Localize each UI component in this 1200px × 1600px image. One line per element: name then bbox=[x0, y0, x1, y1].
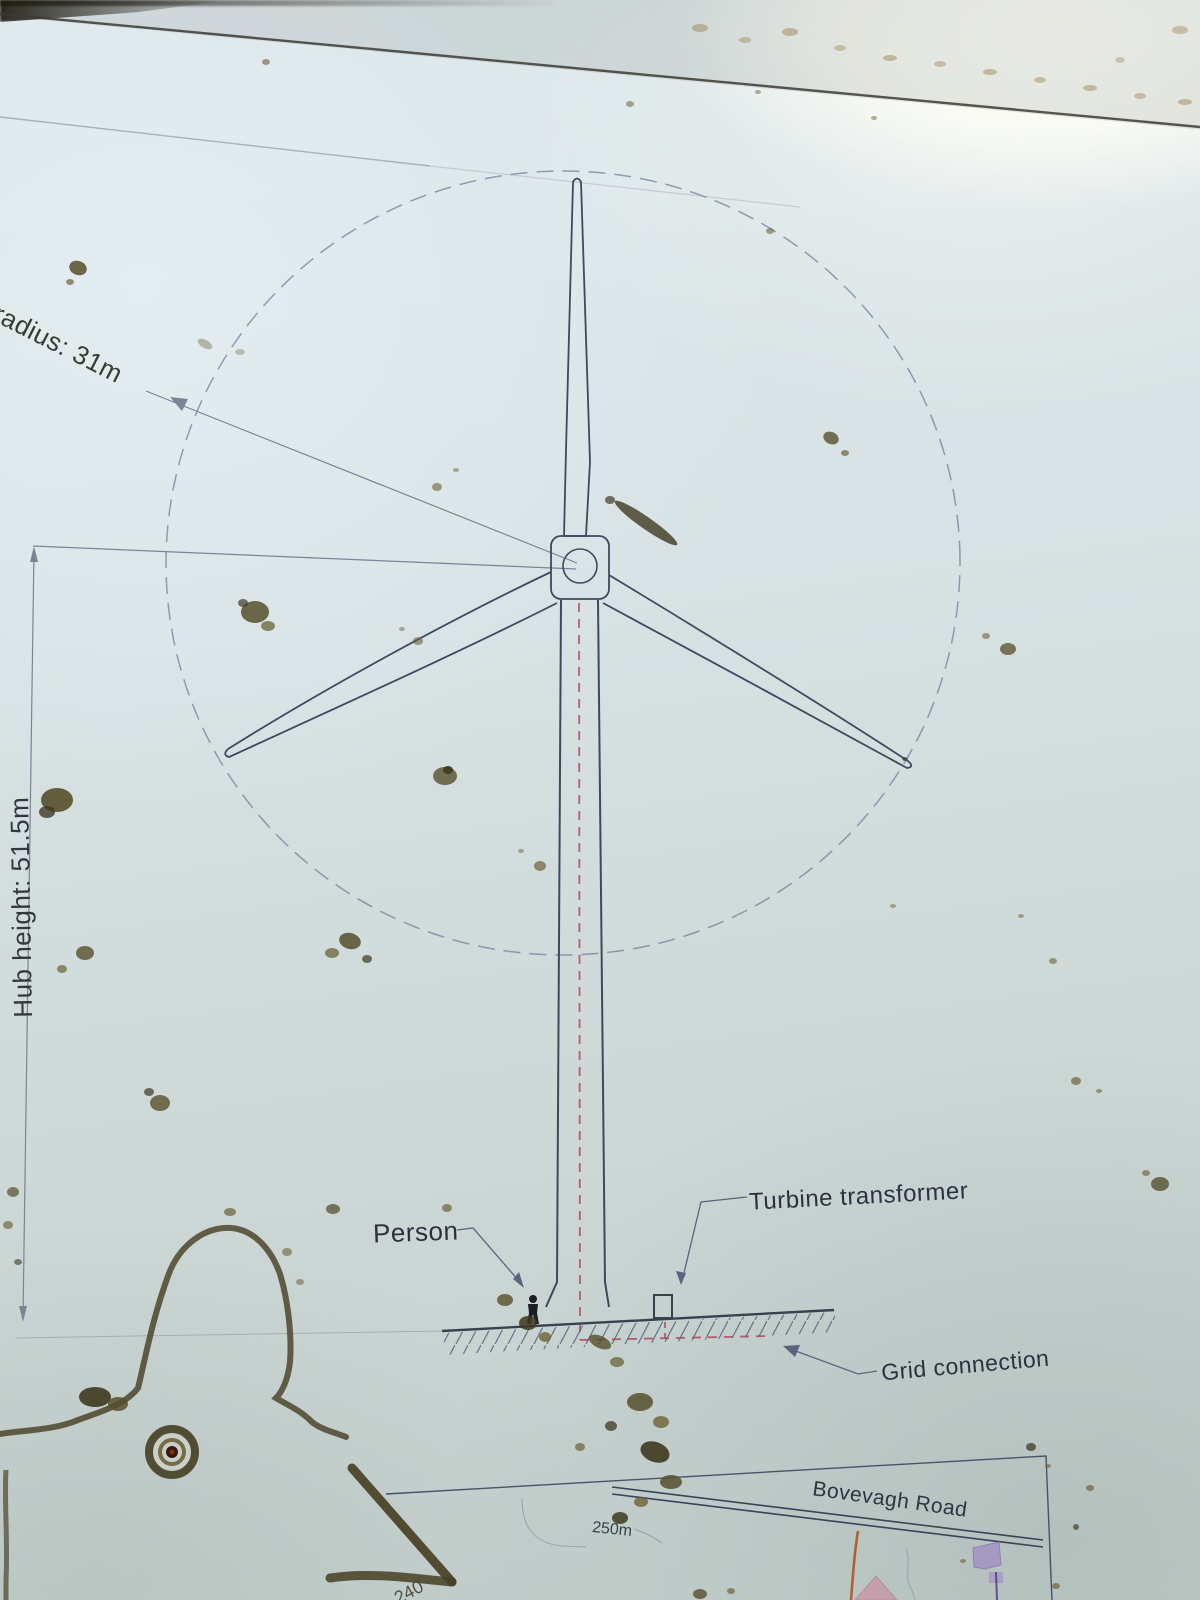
dirt-speck bbox=[296, 1279, 304, 1285]
grommet-core bbox=[170, 1450, 175, 1455]
dirt-speck bbox=[1045, 1464, 1051, 1468]
dirt-speck bbox=[1026, 1443, 1036, 1451]
dirt-speck bbox=[224, 1208, 236, 1216]
dirt-speck bbox=[693, 1589, 707, 1599]
dirt-speck bbox=[144, 1088, 154, 1096]
dirt-speck bbox=[1134, 93, 1146, 99]
dirt-speck bbox=[653, 1416, 669, 1428]
panel-border-line bbox=[0, 117, 430, 166]
dirt-speck bbox=[519, 1316, 537, 1330]
person-arrow-icon bbox=[513, 1272, 524, 1288]
dirt-speck bbox=[235, 349, 245, 355]
dirt-speck bbox=[755, 90, 761, 94]
dirt-streak-horizontal bbox=[330, 1575, 452, 1582]
dirt-outline-shape bbox=[0, 1228, 346, 1437]
dirt-outline-left bbox=[5, 1470, 6, 1600]
dirt-speck bbox=[3, 1221, 13, 1229]
dirt-speck bbox=[337, 930, 362, 951]
blade-right bbox=[603, 575, 911, 768]
dirt-speck bbox=[727, 1588, 735, 1594]
radius-line bbox=[146, 391, 577, 563]
dirt-speck bbox=[1073, 1524, 1079, 1530]
dirt-streak-diagonal bbox=[352, 1468, 452, 1582]
dirt-speck bbox=[1096, 1089, 1102, 1093]
sign-photo: radius: 31m Hub height: 51.5m Person Tur… bbox=[0, 0, 1200, 1600]
dirt-speck bbox=[261, 621, 275, 631]
blade-left bbox=[225, 572, 557, 757]
person-label: Person bbox=[372, 1216, 458, 1250]
dirt-speck bbox=[76, 946, 94, 960]
dirt-speck bbox=[841, 450, 849, 456]
dirt-speck bbox=[634, 1497, 648, 1507]
dirt-speck bbox=[196, 337, 214, 352]
map-building-pink bbox=[855, 1576, 897, 1600]
transformer-box bbox=[654, 1295, 672, 1318]
dirt-speck bbox=[1115, 57, 1125, 63]
tower-right-edge bbox=[598, 600, 609, 1307]
dirt-speck bbox=[1172, 26, 1188, 34]
dirt-speck bbox=[453, 468, 459, 472]
dirt-speck bbox=[1052, 1583, 1060, 1589]
dirt-speck bbox=[610, 1357, 624, 1367]
dirt-speck bbox=[692, 24, 708, 32]
dirt-speck bbox=[890, 904, 896, 908]
dirt-speck bbox=[413, 637, 423, 645]
panel-top-edge-line bbox=[0, 14, 1200, 127]
dirt-speck bbox=[605, 1421, 617, 1431]
dirt-speck bbox=[1049, 958, 1057, 964]
dirt-speck bbox=[575, 1443, 585, 1451]
dimension-arrow-down-icon bbox=[19, 1306, 27, 1322]
dirt-speck bbox=[150, 1095, 170, 1111]
dirt-speck bbox=[1142, 1170, 1150, 1176]
dirt-speck bbox=[497, 1294, 513, 1306]
radius-arrowhead-icon bbox=[170, 397, 188, 411]
hub-height-horizontal-line bbox=[33, 546, 576, 569]
dirt-speck bbox=[766, 228, 774, 234]
dirt-speck bbox=[108, 1397, 128, 1411]
dirt-speck bbox=[399, 627, 405, 631]
ground-hatching bbox=[444, 1312, 835, 1355]
dirt-speck bbox=[1086, 1485, 1094, 1491]
dirt-speck bbox=[1071, 1077, 1081, 1085]
nacelle bbox=[551, 536, 609, 599]
dirt-speck bbox=[611, 496, 680, 549]
grid-arrow-icon bbox=[783, 1345, 800, 1357]
map-contour-wiggle bbox=[906, 1549, 915, 1600]
dirt-speck bbox=[1178, 99, 1192, 105]
dimension-arrow-up-icon bbox=[30, 546, 38, 562]
dirt-speck bbox=[326, 1204, 340, 1214]
blade-up bbox=[564, 179, 590, 537]
dirt-speck bbox=[79, 1387, 111, 1407]
dirt-speck bbox=[282, 1248, 292, 1256]
dirt-speck bbox=[67, 258, 89, 277]
dirt-speck bbox=[626, 101, 634, 107]
dirt-speck bbox=[14, 1259, 22, 1265]
dirt-speck bbox=[442, 1204, 452, 1212]
dirt-speck bbox=[627, 1393, 653, 1411]
dirt-speck bbox=[518, 849, 524, 853]
map-building-purple bbox=[973, 1542, 1001, 1569]
person-figure-head bbox=[529, 1295, 537, 1303]
map-minor-road-orange bbox=[851, 1531, 858, 1600]
dirt-speck bbox=[432, 483, 442, 491]
dirt-speck bbox=[982, 633, 990, 639]
dirt-speck bbox=[1000, 643, 1016, 655]
dirt-speck bbox=[1151, 1177, 1169, 1191]
cable-centerline bbox=[579, 603, 580, 1340]
dirt-speck bbox=[960, 1559, 966, 1563]
map-border bbox=[386, 1456, 1052, 1600]
dirt-speck bbox=[262, 59, 270, 65]
grid-leader bbox=[793, 1350, 877, 1374]
dirt-speck bbox=[660, 1475, 682, 1489]
person-leader bbox=[457, 1228, 519, 1281]
dirt-speck bbox=[534, 861, 546, 871]
dirt-speck bbox=[325, 948, 339, 958]
panel-border-line-faded bbox=[430, 166, 800, 207]
ground-extension-line bbox=[16, 1331, 444, 1338]
dirt-speck bbox=[883, 55, 897, 61]
dirt-speck bbox=[238, 599, 248, 607]
dirt-speck bbox=[739, 37, 751, 43]
dirt-speck bbox=[934, 61, 946, 67]
dirt-speck bbox=[902, 757, 908, 761]
dirt-speck bbox=[1018, 914, 1024, 918]
map-boundary-purple bbox=[996, 1572, 997, 1600]
dirt-speck bbox=[443, 766, 453, 774]
dirt-speck bbox=[834, 45, 846, 51]
dirt-speck bbox=[1083, 85, 1097, 91]
dirt-speck bbox=[782, 28, 798, 36]
dirt-speck bbox=[821, 429, 841, 447]
transformer-leader bbox=[683, 1197, 747, 1277]
dirt-speck bbox=[39, 806, 55, 818]
dirt-speck bbox=[983, 69, 997, 75]
dirt-speck bbox=[57, 965, 67, 973]
hub-height-label: Hub height: 51.5m bbox=[4, 797, 39, 1018]
dirt-speck bbox=[605, 496, 615, 504]
hub bbox=[563, 549, 597, 583]
dirt-speck bbox=[871, 116, 877, 120]
transformer-arrow-icon bbox=[676, 1271, 686, 1285]
dirt-speck bbox=[362, 955, 372, 963]
dirt-speck bbox=[637, 1437, 672, 1466]
dirt-speck bbox=[539, 1332, 551, 1342]
dirt-speck bbox=[66, 279, 74, 285]
tower-left-edge bbox=[546, 600, 561, 1307]
dirt-speck bbox=[1034, 77, 1046, 83]
dirt-speck bbox=[7, 1187, 19, 1197]
